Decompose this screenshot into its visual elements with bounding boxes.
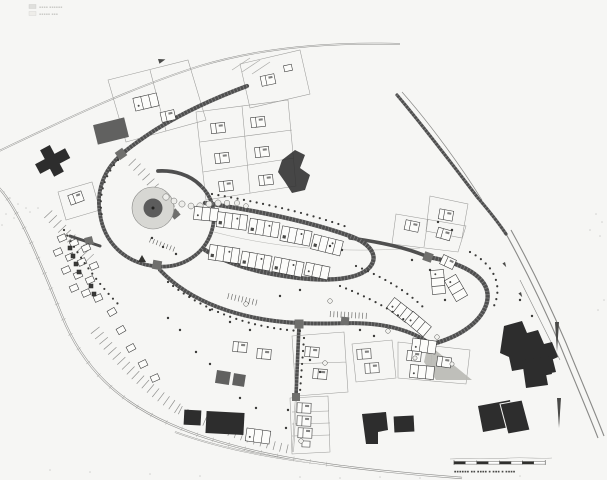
dark-building [184, 410, 202, 426]
detached-house [357, 349, 372, 360]
detached-house [211, 122, 226, 133]
detached-house [297, 403, 311, 413]
detached-house [219, 180, 234, 191]
legend-row-text: ▪▪▪▪ ▪▪▪▪▪▪ [39, 5, 63, 9]
detached-house [215, 152, 230, 163]
row-house-block [409, 364, 434, 379]
detached-house [259, 174, 274, 185]
detached-house [305, 347, 320, 358]
dark-building [394, 415, 415, 432]
detached-house [313, 369, 328, 380]
detached-house [283, 64, 292, 72]
detached-house [297, 416, 311, 426]
legend-row-text: ▪▪▪▪▪ ▪▪▪ [39, 12, 58, 16]
dark-building [205, 411, 244, 435]
row-house-block [193, 206, 218, 221]
legend-swatch [29, 5, 36, 9]
plaza-center-dot [152, 207, 155, 210]
row-house-block [430, 269, 445, 294]
detached-house [298, 428, 312, 438]
detached-house [255, 146, 270, 157]
detached-house [365, 363, 380, 374]
detached-house [257, 349, 272, 360]
detached-house [438, 209, 454, 221]
gray-slab-building [215, 370, 231, 385]
scale-caption: ▪▪▪▪▪▪ ▪▪ ▪▪▪▪ ▪ ▪▪▪ ▪ ▪▪▪▪ [454, 470, 515, 474]
site-plan-drawing: ▪▪▪▪▪▪ ▪▪ ▪▪▪▪ ▪ ▪▪▪ ▪ ▪▪▪▪ ▪▪▪▪ ▪▪▪▪▪▪ … [0, 0, 607, 480]
gray-slab-building [232, 373, 246, 387]
site-plan-page: ▪▪▪▪▪▪ ▪▪ ▪▪▪▪ ▪ ▪▪▪ ▪ ▪▪▪▪ ▪▪▪▪ ▪▪▪▪▪▪ … [0, 0, 607, 480]
legend-swatch [29, 12, 36, 16]
detached-house [436, 356, 451, 368]
detached-house [251, 116, 266, 127]
detached-house [233, 342, 248, 353]
